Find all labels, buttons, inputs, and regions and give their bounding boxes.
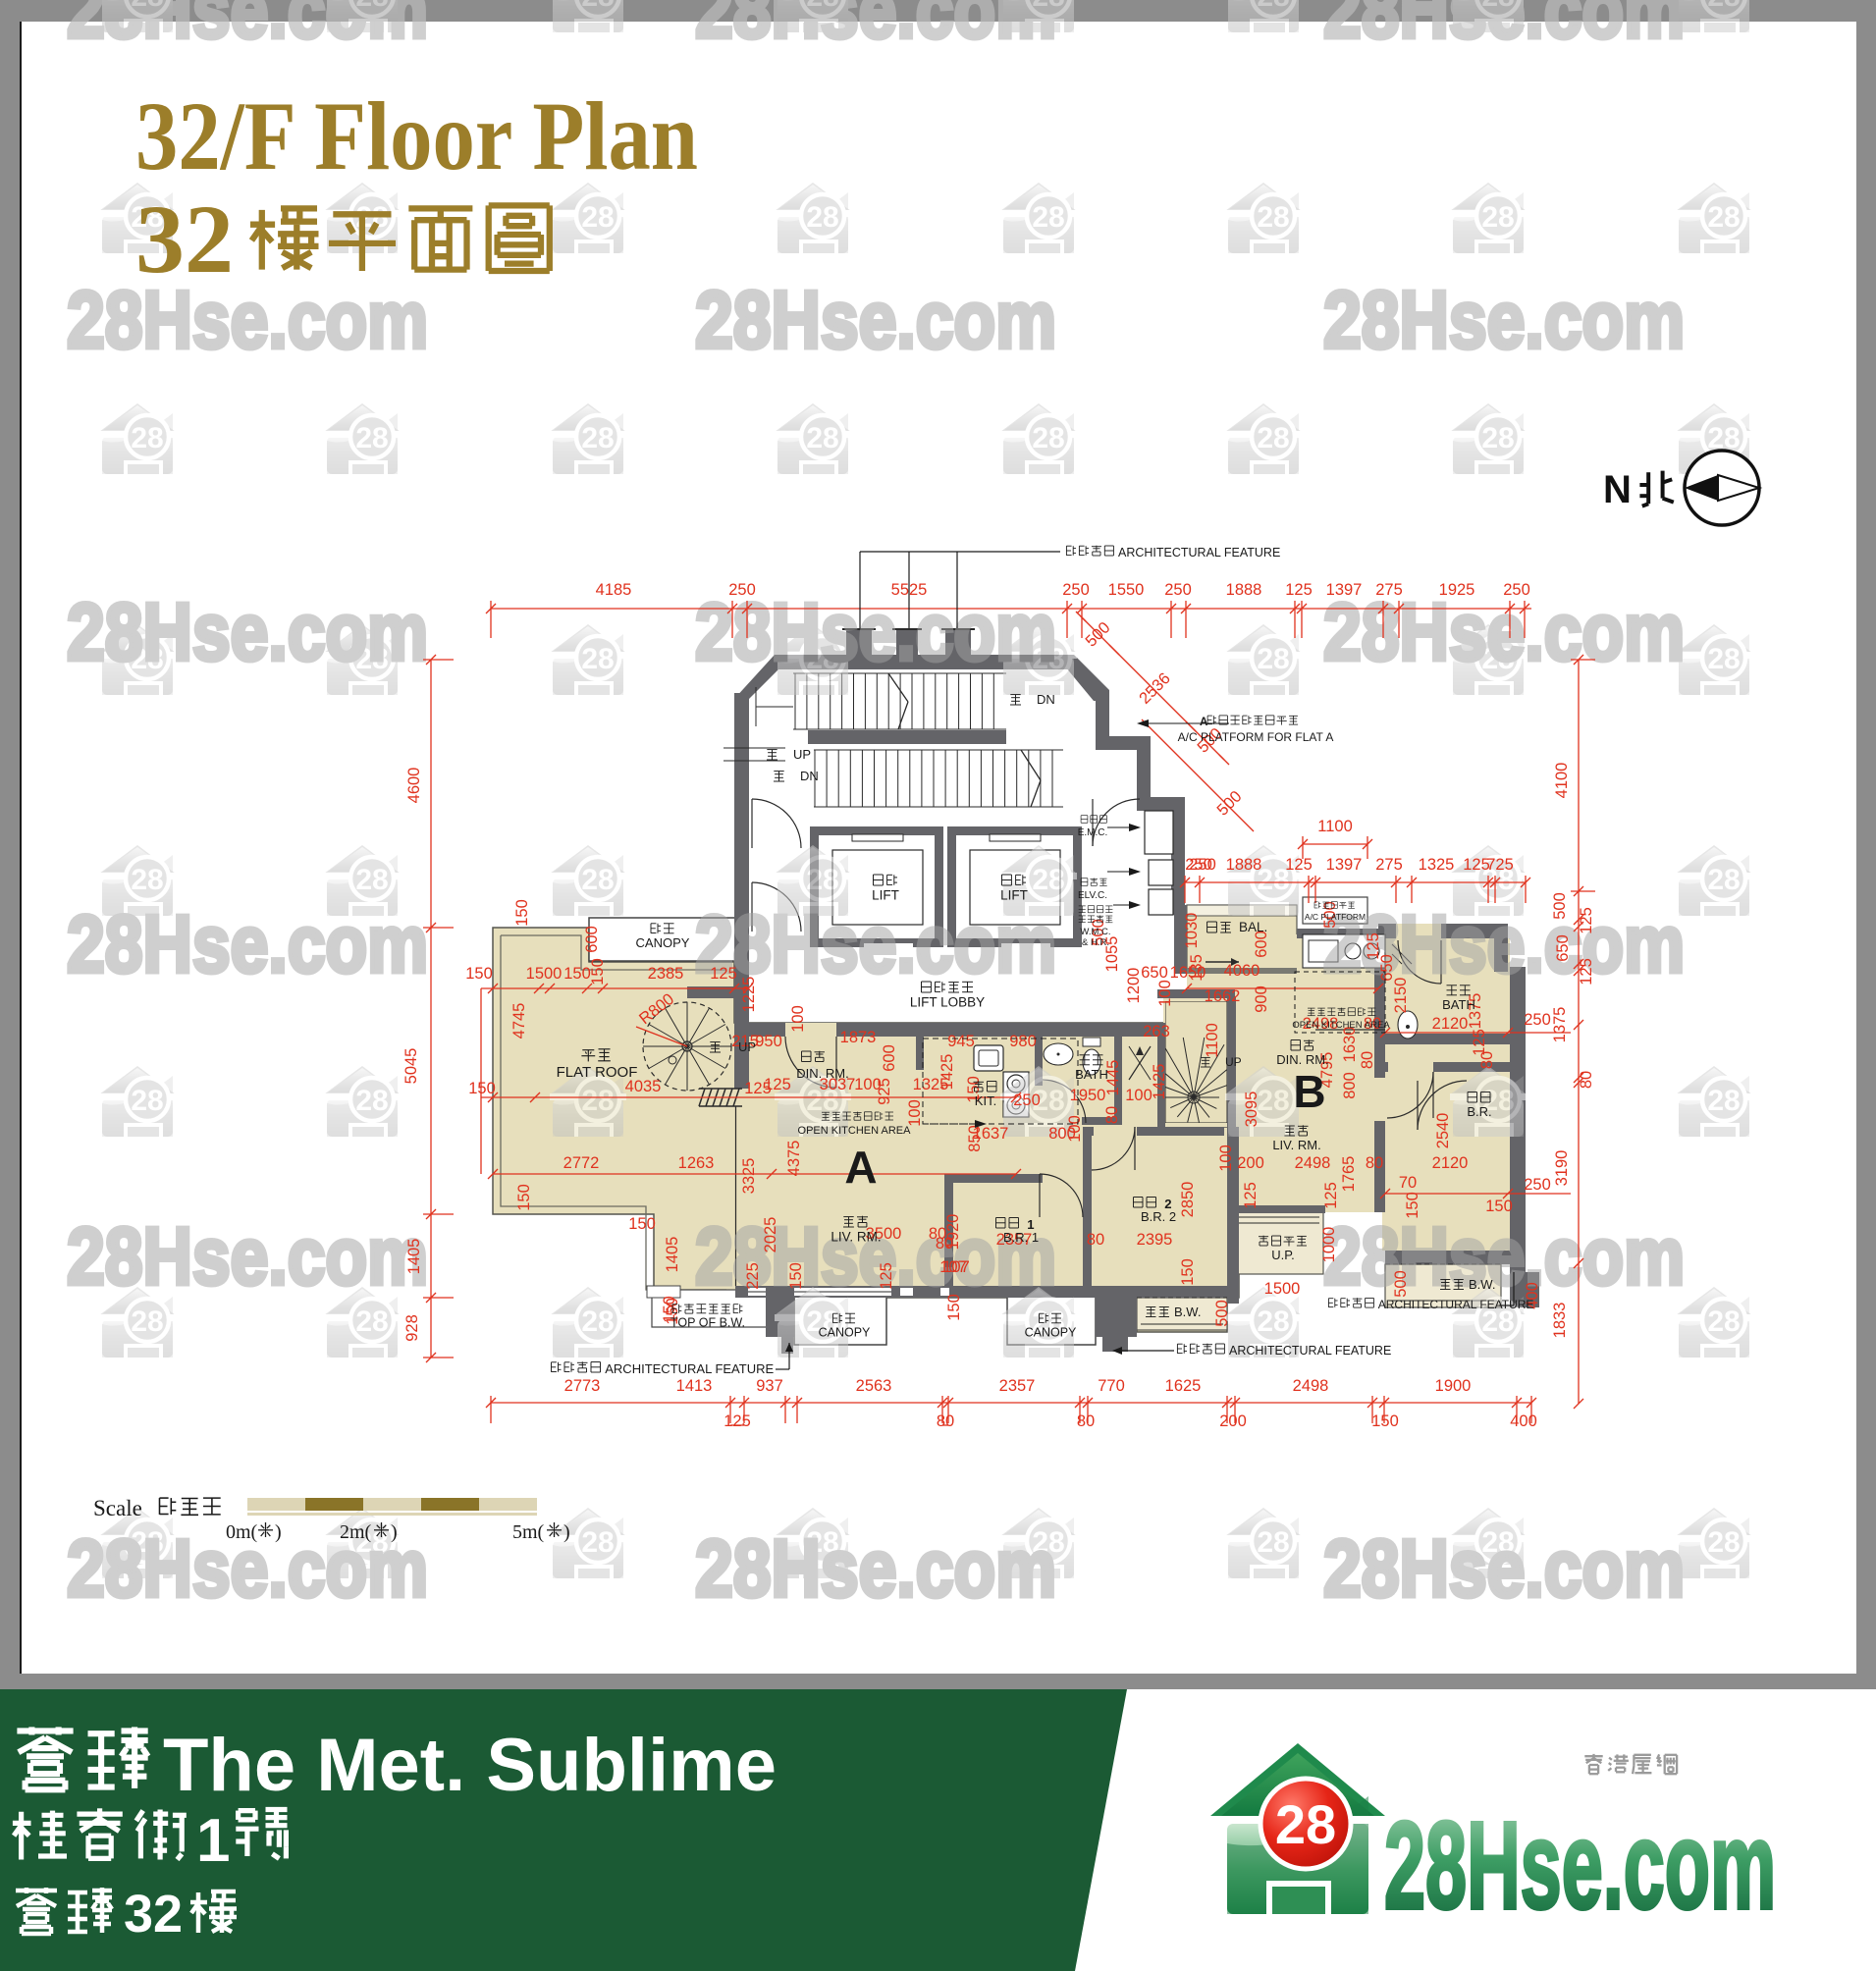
- svg-text:250: 250: [1013, 1092, 1041, 1109]
- svg-text:5045: 5045: [402, 1048, 420, 1085]
- svg-text:B.R. 1: B.R. 1: [1003, 1230, 1039, 1245]
- svg-text:2498: 2498: [1293, 1377, 1329, 1395]
- svg-text:225: 225: [744, 1262, 762, 1290]
- svg-text:BATH: BATH: [1075, 1067, 1108, 1082]
- svg-text:1263: 1263: [678, 1154, 715, 1172]
- svg-text:150: 150: [628, 1215, 656, 1233]
- svg-text:): ): [563, 1521, 570, 1543]
- svg-text:2025: 2025: [762, 1217, 779, 1253]
- svg-text:A: A: [1200, 717, 1208, 728]
- svg-text:200: 200: [1237, 1154, 1264, 1172]
- svg-text:2395: 2395: [1137, 1231, 1173, 1249]
- svg-text:925: 925: [876, 1078, 893, 1105]
- svg-text:80: 80: [937, 1412, 954, 1430]
- svg-text:1413: 1413: [676, 1377, 713, 1395]
- svg-text:600: 600: [881, 1044, 898, 1072]
- svg-text:1325: 1325: [1419, 856, 1455, 874]
- svg-text:LIV. RM.: LIV. RM.: [1272, 1138, 1320, 1152]
- svg-text:28Hse.com: 28Hse.com: [1384, 1797, 1776, 1936]
- svg-text:W.M.C.: W.M.C.: [1080, 927, 1110, 937]
- svg-text:1625: 1625: [1165, 1377, 1202, 1395]
- svg-text:150: 150: [1371, 1412, 1399, 1430]
- svg-text:N: N: [1603, 468, 1632, 511]
- svg-text:250: 250: [1189, 856, 1216, 874]
- svg-text:A: A: [844, 1142, 877, 1193]
- svg-text:Scale: Scale: [93, 1496, 142, 1520]
- svg-text:): ): [275, 1521, 282, 1543]
- svg-text:125: 125: [1471, 1029, 1488, 1056]
- svg-text:275: 275: [1375, 581, 1403, 599]
- svg-text:28Hse.com: 28Hse.com: [67, 1211, 428, 1302]
- svg-text:3190: 3190: [1553, 1150, 1571, 1187]
- svg-text:4600: 4600: [405, 768, 423, 804]
- svg-text:ARCHITECTURAL FEATURE: ARCHITECTURAL FEATURE: [1118, 546, 1280, 559]
- svg-text:OPEN KITCHEN AREA: OPEN KITCHEN AREA: [798, 1125, 912, 1137]
- svg-text:200: 200: [1219, 1412, 1247, 1430]
- svg-text:150: 150: [515, 1184, 533, 1211]
- svg-text:2357: 2357: [999, 1377, 1036, 1395]
- svg-text:& H.R.: & H.R.: [1082, 937, 1109, 948]
- svg-text:A/C PLATFORM FOR FLAT A: A/C PLATFORM FOR FLAT A: [1178, 730, 1334, 744]
- svg-text:DN: DN: [1037, 692, 1055, 707]
- svg-text:125: 125: [1322, 1182, 1340, 1209]
- svg-text:28Hse.com: 28Hse.com: [695, 275, 1056, 365]
- svg-text:28Hse.com: 28Hse.com: [695, 899, 1056, 989]
- svg-text:32: 32: [135, 185, 234, 293]
- svg-text:DN: DN: [800, 769, 819, 783]
- svg-text:1405: 1405: [664, 1237, 681, 1273]
- svg-text:150: 150: [1485, 1198, 1513, 1215]
- svg-text:LIFT LOBBY: LIFT LOBBY: [910, 995, 985, 1010]
- svg-text:1030: 1030: [1183, 913, 1201, 949]
- svg-text:28Hse.com: 28Hse.com: [695, 587, 1056, 677]
- svg-text:150: 150: [465, 965, 493, 983]
- svg-text:100: 100: [1125, 1087, 1152, 1104]
- svg-text:150: 150: [468, 1080, 496, 1097]
- svg-text:100: 100: [789, 1005, 807, 1033]
- svg-text:928: 928: [403, 1314, 421, 1342]
- svg-text:2150: 2150: [1392, 978, 1410, 1014]
- svg-text:1833: 1833: [1551, 1303, 1569, 1339]
- svg-text:250: 250: [1524, 1011, 1551, 1029]
- svg-text:800: 800: [1341, 1072, 1359, 1099]
- svg-text:1950: 1950: [1070, 1087, 1106, 1104]
- svg-text:125: 125: [724, 1412, 751, 1430]
- svg-text:80: 80: [1359, 1051, 1376, 1069]
- svg-text:1873: 1873: [840, 1029, 877, 1046]
- svg-text:B.R. 2: B.R. 2: [1141, 1209, 1176, 1224]
- svg-text:107: 107: [939, 1258, 967, 1276]
- svg-text:500: 500: [1213, 1300, 1231, 1327]
- svg-text:3325: 3325: [740, 1158, 758, 1195]
- svg-text:100: 100: [906, 1099, 924, 1127]
- svg-text:1550: 1550: [1108, 581, 1145, 599]
- svg-text:ELV.C.: ELV.C.: [1078, 890, 1107, 901]
- svg-text:400: 400: [1510, 1412, 1537, 1430]
- svg-text:125: 125: [1242, 1182, 1260, 1209]
- svg-text:125: 125: [710, 965, 737, 983]
- svg-text:2850: 2850: [1179, 1182, 1197, 1218]
- svg-text:125: 125: [1578, 958, 1595, 985]
- svg-text:): ): [391, 1521, 398, 1543]
- svg-text:28Hse.com: 28Hse.com: [695, 1523, 1056, 1614]
- svg-text:UP: UP: [738, 1039, 756, 1054]
- svg-text:1100: 1100: [1204, 1023, 1221, 1057]
- svg-text:5m(: 5m(: [512, 1521, 545, 1543]
- svg-text:4185: 4185: [596, 581, 632, 599]
- svg-text:2120: 2120: [1432, 1154, 1469, 1172]
- svg-text:125: 125: [878, 1262, 895, 1290]
- svg-text:100: 100: [1156, 980, 1174, 1007]
- svg-text:28Hse.com: 28Hse.com: [67, 587, 428, 677]
- svg-text:1630: 1630: [1341, 1027, 1359, 1063]
- svg-text:150: 150: [1404, 1192, 1421, 1219]
- svg-text:650: 650: [1554, 934, 1572, 962]
- svg-text:1765: 1765: [1340, 1156, 1358, 1193]
- svg-text:28: 28: [1275, 1793, 1336, 1855]
- svg-text:28Hse.com: 28Hse.com: [1323, 587, 1685, 677]
- svg-text:80: 80: [1077, 1412, 1095, 1430]
- svg-text:135: 135: [1188, 954, 1206, 982]
- svg-text:900: 900: [1253, 985, 1270, 1013]
- svg-text:28Hse.com: 28Hse.com: [67, 275, 428, 365]
- svg-text:80: 80: [1087, 1231, 1104, 1249]
- svg-text:80: 80: [1103, 1106, 1121, 1124]
- svg-text:125: 125: [1578, 907, 1595, 934]
- svg-text:28Hse.com: 28Hse.com: [1323, 1523, 1685, 1614]
- svg-text:4060: 4060: [1224, 962, 1260, 980]
- svg-text:KIT.: KIT.: [975, 1093, 996, 1108]
- svg-text:80: 80: [936, 1235, 953, 1252]
- svg-text:500: 500: [1551, 892, 1569, 920]
- svg-text:2120: 2120: [1432, 1015, 1469, 1033]
- svg-text:1397: 1397: [1326, 856, 1363, 874]
- svg-text:CANOPY: CANOPY: [636, 935, 690, 950]
- svg-text:CANOPY: CANOPY: [1025, 1326, 1077, 1340]
- svg-text:1: 1: [196, 1807, 230, 1875]
- svg-text:1500: 1500: [1264, 1280, 1301, 1298]
- svg-text:DIN. RM.: DIN. RM.: [1276, 1052, 1328, 1067]
- svg-text:125: 125: [1285, 581, 1313, 599]
- svg-text:600: 600: [583, 926, 601, 953]
- svg-text:LIFT: LIFT: [872, 888, 899, 903]
- svg-text:LIFT: LIFT: [1000, 888, 1028, 903]
- svg-text:650: 650: [1141, 964, 1168, 982]
- svg-text:1375: 1375: [1551, 1007, 1569, 1043]
- svg-text:800: 800: [1048, 1125, 1076, 1143]
- svg-text:70: 70: [1399, 1174, 1417, 1192]
- svg-text:1397: 1397: [1326, 581, 1363, 599]
- svg-text:TOP OF B.W.: TOP OF B.W.: [670, 1316, 745, 1330]
- svg-text:3095: 3095: [1243, 1092, 1260, 1128]
- svg-text:1100: 1100: [1317, 818, 1352, 835]
- svg-text:ARCHITECTURAL FEATURE: ARCHITECTURAL FEATURE: [1378, 1298, 1534, 1311]
- svg-text:A/C PLATFORM: A/C PLATFORM: [1305, 912, 1366, 922]
- svg-text:980: 980: [1009, 1033, 1037, 1050]
- svg-text:28Hse.com: 28Hse.com: [1323, 275, 1685, 365]
- svg-text:DIN. RM.: DIN. RM.: [796, 1066, 848, 1081]
- svg-text:100: 100: [1217, 1145, 1235, 1172]
- svg-text:125: 125: [1285, 856, 1313, 874]
- svg-text:ARCHITECTURAL FEATURE: ARCHITECTURAL FEATURE: [1229, 1344, 1391, 1358]
- svg-text:4745: 4745: [510, 1003, 528, 1039]
- svg-text:125: 125: [764, 1076, 791, 1093]
- svg-text:250: 250: [1524, 1176, 1551, 1194]
- svg-text:OPEN KITCHEN AREA: OPEN KITCHEN AREA: [1292, 1020, 1390, 1031]
- svg-text:LIV. RM.: LIV. RM.: [831, 1230, 881, 1245]
- svg-text:250: 250: [728, 581, 756, 599]
- svg-text:ARCHITECTURAL FEATURE: ARCHITECTURAL FEATURE: [605, 1361, 774, 1376]
- svg-text:600: 600: [1253, 931, 1270, 958]
- svg-text:150: 150: [513, 899, 531, 927]
- svg-text:1888: 1888: [1226, 581, 1262, 599]
- svg-text:1637: 1637: [973, 1125, 1009, 1143]
- svg-text:2563: 2563: [856, 1377, 892, 1395]
- svg-text:1225: 1225: [740, 977, 758, 1013]
- svg-text:150: 150: [563, 965, 591, 983]
- svg-text:150: 150: [589, 958, 607, 985]
- svg-text:U.P.: U.P.: [1271, 1248, 1295, 1262]
- svg-text:2m(: 2m(: [340, 1521, 372, 1543]
- svg-text:250: 250: [1062, 581, 1090, 599]
- svg-text:1000: 1000: [1320, 1227, 1338, 1263]
- svg-text:1405: 1405: [405, 1239, 423, 1275]
- svg-text:725: 725: [1486, 856, 1514, 874]
- svg-text:The Met. Sublime: The Met. Sublime: [163, 1724, 777, 1807]
- svg-text:1900: 1900: [1435, 1377, 1472, 1395]
- svg-text:2773: 2773: [564, 1377, 601, 1395]
- svg-text:BAL.: BAL.: [1239, 920, 1267, 934]
- svg-text:80: 80: [1366, 1154, 1383, 1172]
- svg-text:950: 950: [755, 1033, 782, 1050]
- svg-text:B.W.: B.W.: [1469, 1277, 1495, 1292]
- svg-text:UP: UP: [1225, 1055, 1242, 1069]
- svg-text:770: 770: [1098, 1377, 1125, 1395]
- svg-text:UP: UP: [793, 747, 811, 762]
- svg-text:945: 945: [947, 1033, 975, 1050]
- svg-text:1500: 1500: [526, 965, 563, 983]
- svg-text:4100: 4100: [1553, 763, 1571, 799]
- svg-text:650: 650: [1378, 954, 1396, 982]
- svg-text:1888: 1888: [1226, 856, 1262, 874]
- svg-text:2772: 2772: [563, 1154, 600, 1172]
- svg-text:1425: 1425: [1151, 1064, 1168, 1100]
- svg-text:263: 263: [1143, 1023, 1170, 1040]
- svg-text:2540: 2540: [1434, 1113, 1452, 1149]
- svg-text:B.W.: B.W.: [1174, 1305, 1201, 1319]
- svg-text:275: 275: [1375, 856, 1403, 874]
- svg-text:500: 500: [1392, 1270, 1410, 1298]
- svg-text:150: 150: [1179, 1258, 1197, 1286]
- svg-text:250: 250: [1164, 581, 1192, 599]
- svg-text:80: 80: [1578, 1071, 1595, 1089]
- svg-text:2498: 2498: [1295, 1154, 1331, 1172]
- svg-text:0m(: 0m(: [226, 1521, 258, 1543]
- svg-text:32/F Floor Plan: 32/F Floor Plan: [135, 81, 698, 190]
- svg-text:937: 937: [756, 1377, 783, 1395]
- svg-text:150: 150: [945, 1294, 963, 1321]
- svg-text:1925: 1925: [1439, 581, 1475, 599]
- svg-text:28Hse.com: 28Hse.com: [67, 899, 428, 989]
- svg-text:4375: 4375: [785, 1141, 803, 1177]
- svg-text:BATH: BATH: [1442, 997, 1475, 1012]
- svg-text:E.M.C.: E.M.C.: [1078, 827, 1108, 838]
- svg-text:28Hse.com: 28Hse.com: [1323, 1211, 1685, 1302]
- svg-text:150: 150: [787, 1262, 805, 1290]
- svg-text:B: B: [1293, 1066, 1325, 1117]
- svg-text:1425: 1425: [938, 1054, 956, 1091]
- svg-text:FLAT ROOF: FLAT ROOF: [557, 1064, 638, 1081]
- svg-text:CANOPY: CANOPY: [819, 1326, 871, 1340]
- svg-text:2385: 2385: [648, 965, 684, 983]
- svg-text:B.R.: B.R.: [1467, 1104, 1491, 1119]
- svg-text:1662: 1662: [1205, 987, 1241, 1005]
- svg-text:250: 250: [1503, 581, 1530, 599]
- svg-text:32: 32: [124, 1885, 183, 1944]
